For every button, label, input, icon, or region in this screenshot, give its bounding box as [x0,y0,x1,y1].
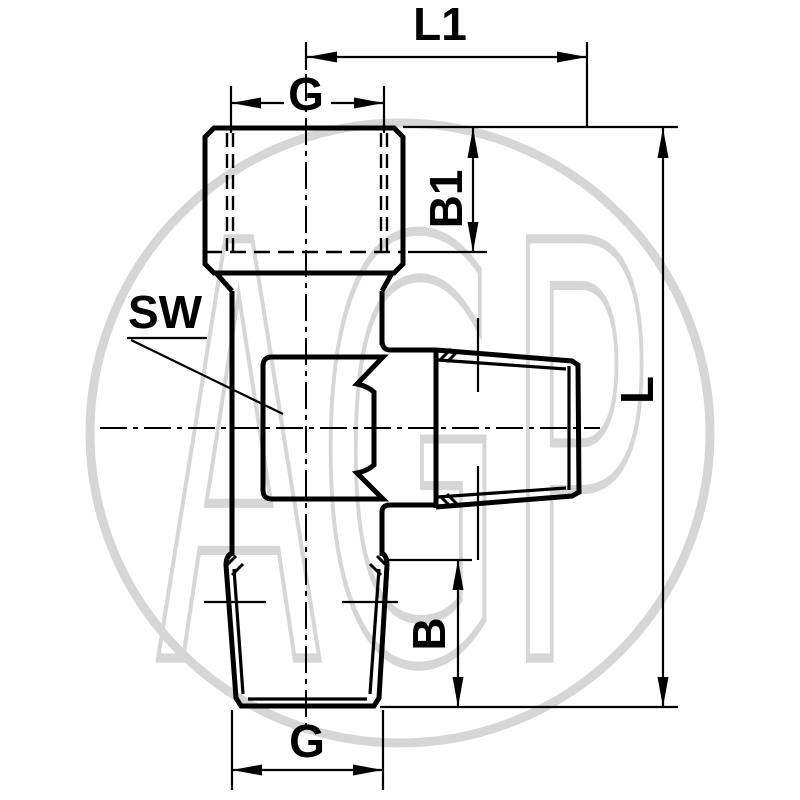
dimension-label-l: L [611,376,663,404]
dimension-label-b: B [403,617,455,650]
technical-drawing-canvas: AGP [0,0,800,800]
dimension-label-b1: B1 [420,170,472,229]
dimension-label-l1: L1 [413,0,467,50]
watermark: AGP [90,123,710,795]
dimension-label-g-top: G [288,68,324,120]
dimension-label-g-bottom: G [289,715,325,767]
fitting-diagram: AGP [0,0,800,800]
dimension-label-sw: SW [128,286,203,338]
